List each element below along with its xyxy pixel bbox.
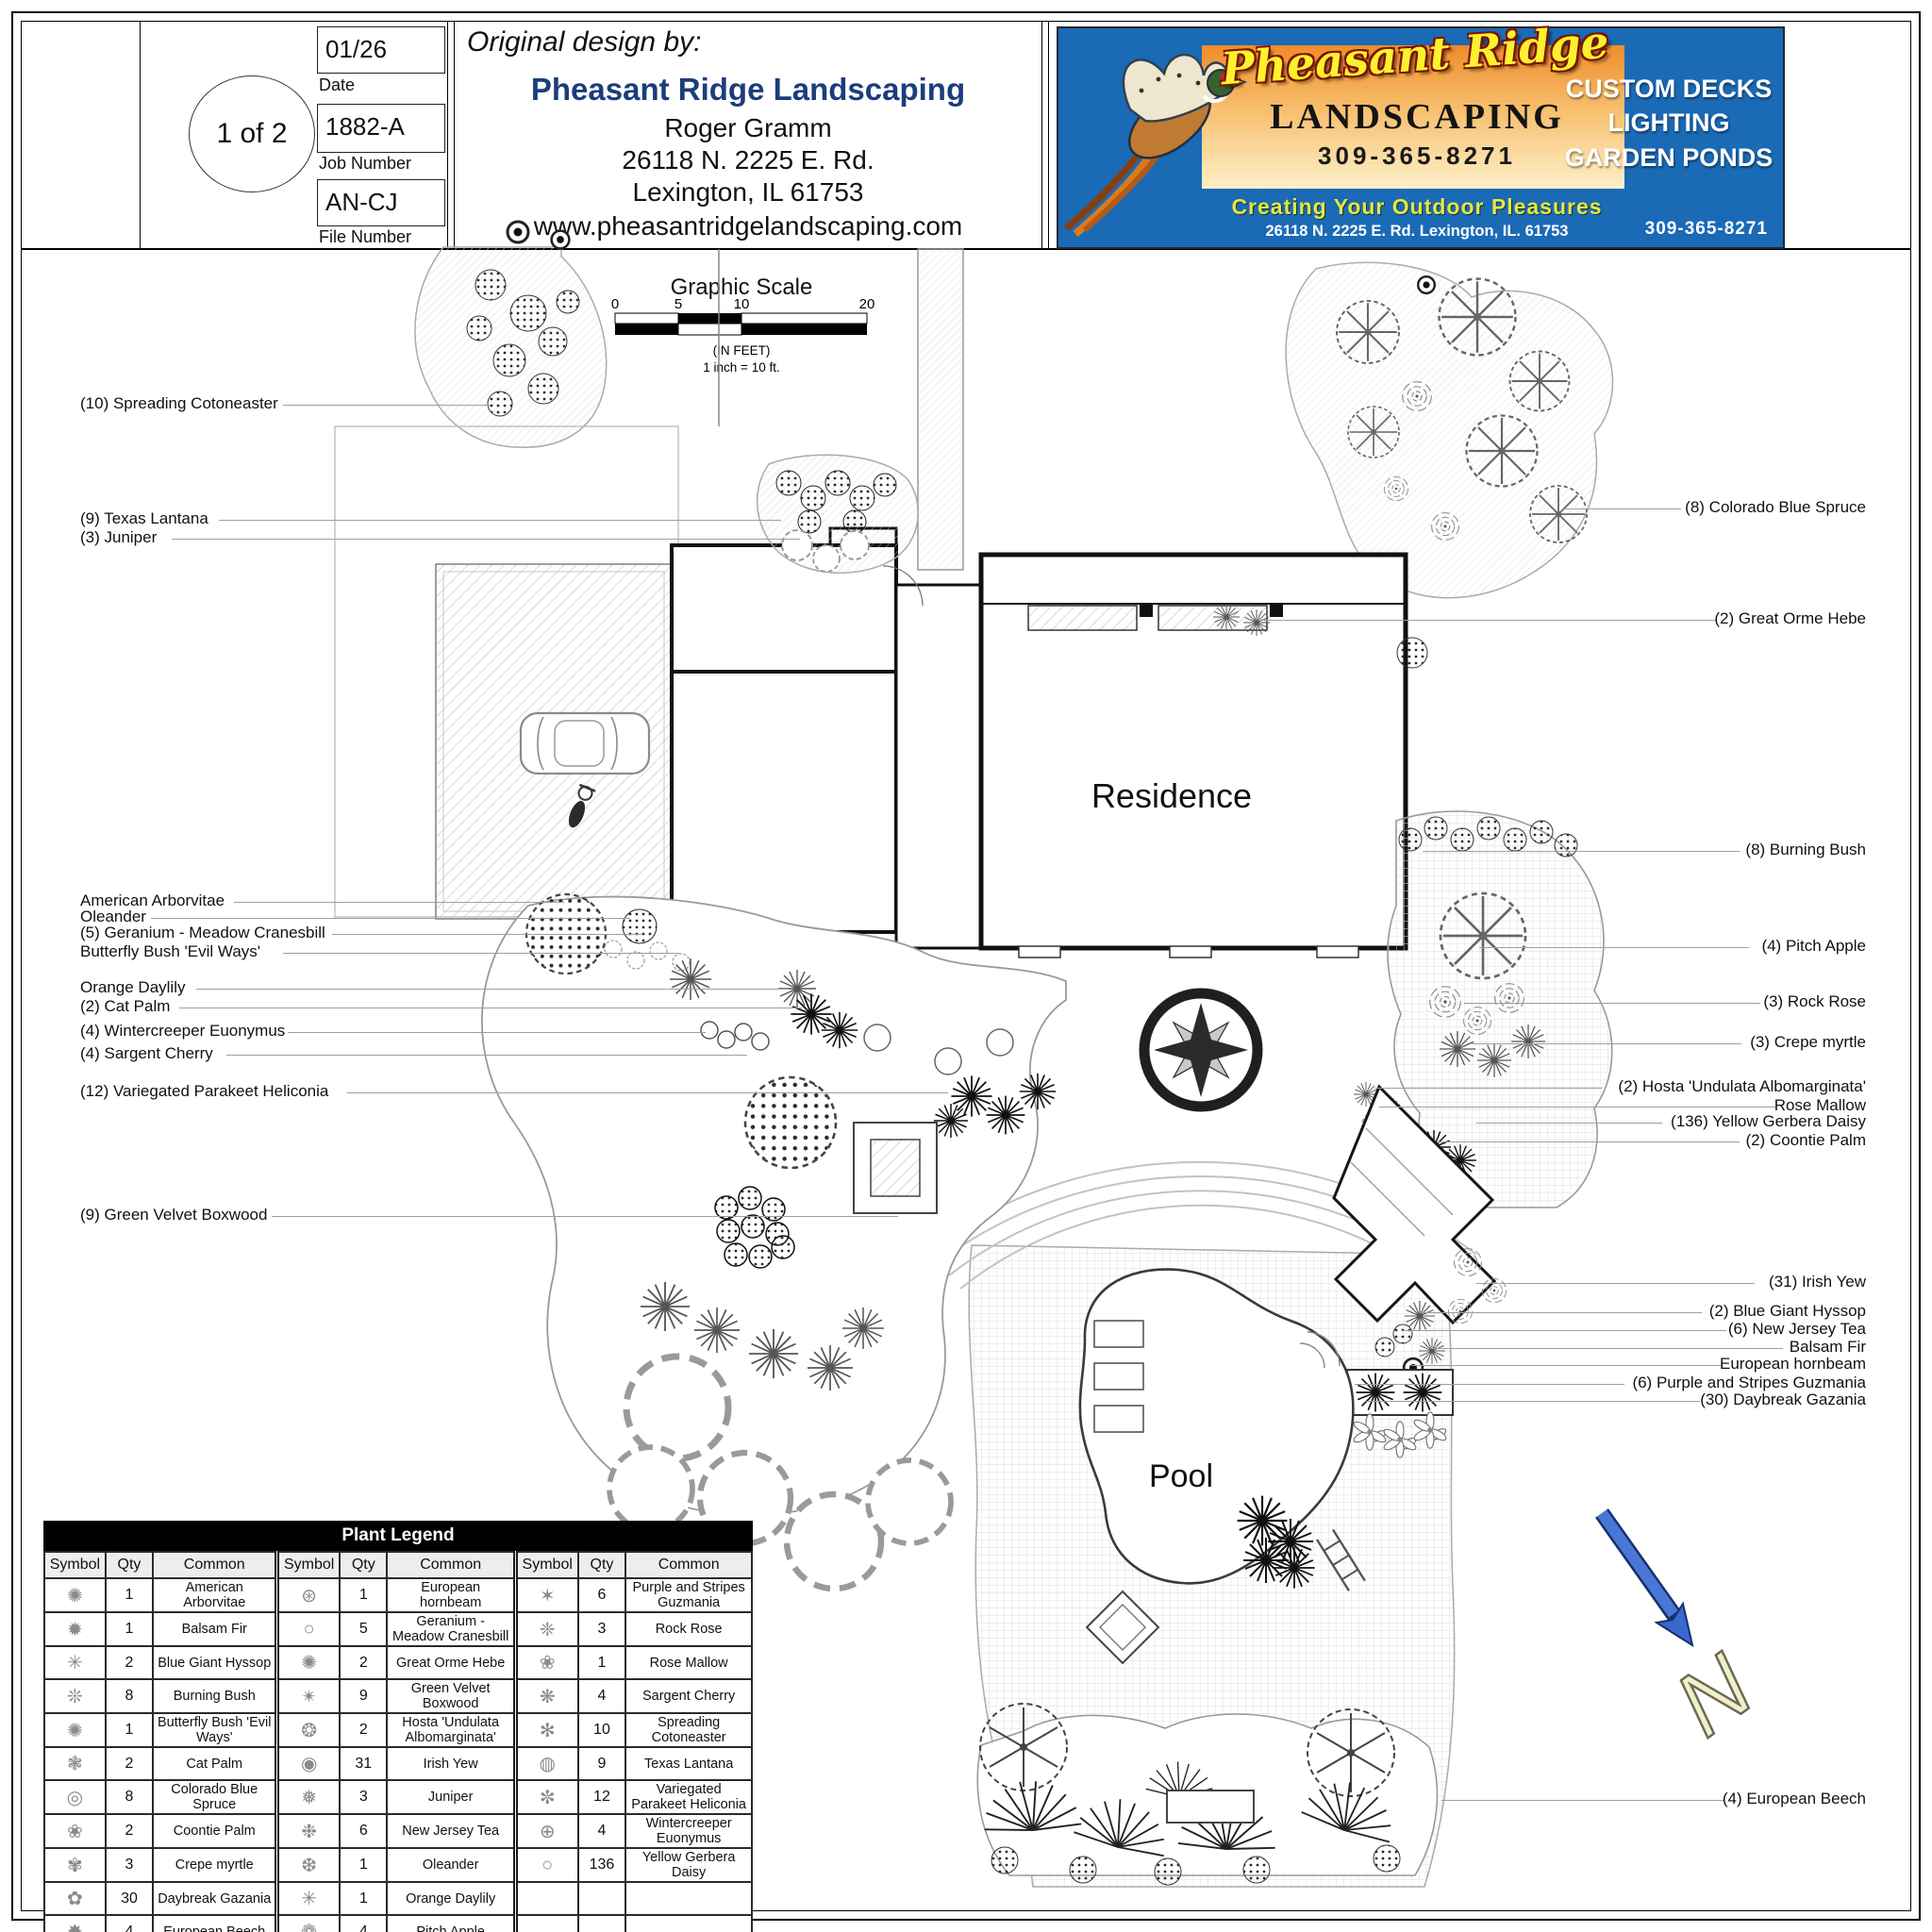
plant-qty: 1 xyxy=(106,1578,153,1612)
residence: Residence xyxy=(672,528,1406,958)
plant-symbol: ❂ xyxy=(277,1713,340,1747)
service-item: CUSTOM DECKS xyxy=(1560,72,1777,106)
legend-row: ✹1Balsam Fir○5Geranium - Meadow Cranesbi… xyxy=(44,1612,752,1646)
plant-name: Wintercreeper Euonymus xyxy=(625,1814,752,1848)
plant-name: Colorado Blue Spruce xyxy=(153,1780,277,1814)
callout-label: (3) Crepe myrtle xyxy=(1750,1033,1866,1052)
svg-text:5: 5 xyxy=(675,296,682,312)
callout-label: (4) Pitch Apple xyxy=(1761,937,1866,956)
callout-leader-line xyxy=(1479,947,1749,948)
callout-leader-line xyxy=(1379,1107,1775,1108)
callout-leader-line xyxy=(1438,1141,1740,1142)
front-walkway xyxy=(918,249,963,570)
legend-row: ❃2Cat Palm◉31Irish Yew◍9Texas Lantana xyxy=(44,1747,752,1780)
callout-leader-line xyxy=(1423,851,1740,852)
legend-row: ✺1Butterfly Bush 'Evil Ways'❂2Hosta 'Und… xyxy=(44,1713,752,1747)
plant-symbol: ❀ xyxy=(44,1814,106,1848)
callout-label: (9) Texas Lantana xyxy=(80,509,208,528)
legend-row: ✺1American Arborvitae⊛1European hornbeam… xyxy=(44,1578,752,1612)
plant-symbol: ○ xyxy=(277,1612,340,1646)
callout-label: European hornbeam xyxy=(1720,1355,1866,1374)
plant-qty: 9 xyxy=(578,1747,626,1780)
callout-leader-line xyxy=(1464,1003,1760,1004)
plant-qty: 3 xyxy=(340,1780,387,1814)
bed-top-left xyxy=(415,222,607,447)
plant-symbol xyxy=(515,1882,577,1915)
plant-name: Pitch Apple xyxy=(387,1915,515,1932)
plant-name: Juniper xyxy=(387,1780,515,1814)
callout-label: (4) Sargent Cherry xyxy=(80,1044,213,1063)
callout-leader-line xyxy=(1476,1123,1662,1124)
callout-leader-line xyxy=(1441,1800,1724,1801)
plant-qty xyxy=(578,1882,626,1915)
service-item: LIGHTING xyxy=(1560,106,1777,140)
plant-name xyxy=(625,1915,752,1932)
plant-name: Texas Lantana xyxy=(625,1747,752,1780)
plant-qty: 1 xyxy=(106,1612,153,1646)
callout-label: (30) Daybreak Gazania xyxy=(1700,1391,1866,1409)
callout-label: (12) Variegated Parakeet Heliconia xyxy=(80,1082,328,1101)
callout-leader-line xyxy=(151,918,630,919)
residence-label: Residence xyxy=(1091,776,1252,815)
plant-qty: 30 xyxy=(106,1882,153,1915)
callout-label: (3) Rock Rose xyxy=(1763,992,1866,1011)
north-arrow: N xyxy=(1585,1502,1887,1813)
callout-label: (2) Great Orme Hebe xyxy=(1714,609,1866,628)
plant-qty: 2 xyxy=(340,1713,387,1747)
plant-name: New Jersey Tea xyxy=(387,1814,515,1848)
plant-qty: 1 xyxy=(340,1848,387,1882)
north-letter: N xyxy=(1657,1635,1771,1756)
callout-label: Butterfly Bush 'Evil Ways' xyxy=(80,942,260,961)
plant-symbol: ✺ xyxy=(277,1646,340,1679)
plant-name: Butterfly Bush 'Evil Ways' xyxy=(153,1713,277,1747)
legend-col-header: Qty xyxy=(578,1552,626,1578)
legend-col-header: Common xyxy=(625,1552,752,1578)
callout-label: (6) Purple and Stripes Guzmania xyxy=(1632,1374,1866,1392)
plant-symbol: ✹ xyxy=(44,1612,106,1646)
plant-name: Daybreak Gazania xyxy=(153,1882,277,1915)
company-logo-banner: Pheasant Ridge LANDSCAPING 309-365-8271 … xyxy=(1057,26,1785,249)
svg-text:(IN FEET): (IN FEET) xyxy=(713,343,771,358)
callout-leader-line xyxy=(1264,620,1717,621)
plant-name: Variegated Parakeet Heliconia xyxy=(625,1780,752,1814)
legend-col-header: Common xyxy=(387,1552,515,1578)
plant-name: Rock Rose xyxy=(625,1612,752,1646)
plant-qty: 12 xyxy=(578,1780,626,1814)
plant-symbol: ✻ xyxy=(515,1713,577,1747)
plant-qty: 10 xyxy=(578,1713,626,1747)
callout-label: (31) Irish Yew xyxy=(1769,1273,1866,1291)
plant-qty: 6 xyxy=(340,1814,387,1848)
plant-symbol: ❁ xyxy=(277,1915,340,1932)
plant-qty: 4 xyxy=(578,1679,626,1713)
plant-symbol: ◉ xyxy=(277,1747,340,1780)
plant-symbol: ✶ xyxy=(515,1578,577,1612)
plant-name: Green Velvet Boxwood xyxy=(387,1679,515,1713)
callout-label: Orange Daylily xyxy=(80,978,186,997)
callout-label: (2) Hosta 'Undulata Albomarginata' xyxy=(1618,1077,1866,1096)
callout-leader-line xyxy=(1564,508,1681,509)
plant-symbol: ❈ xyxy=(515,1612,577,1646)
pool-label: Pool xyxy=(1149,1458,1213,1494)
plant-symbol: ○ xyxy=(515,1848,577,1882)
plant-symbol: ❋ xyxy=(515,1679,577,1713)
plant-name: Crepe myrtle xyxy=(153,1848,277,1882)
callout-label: (3) Juniper xyxy=(80,528,157,547)
plant-qty: 31 xyxy=(340,1747,387,1780)
plant-qty: 4 xyxy=(340,1915,387,1932)
svg-text:10: 10 xyxy=(734,296,750,312)
legend-col-header: Qty xyxy=(340,1552,387,1578)
callout-label: (9) Green Velvet Boxwood xyxy=(80,1206,267,1224)
legend-col-header: Symbol xyxy=(277,1552,340,1578)
callout-leader-line xyxy=(196,989,789,990)
callout-leader-line xyxy=(272,1216,898,1217)
banner-phone-2: 309-365-8271 xyxy=(1645,219,1768,240)
legend-col-header: Common xyxy=(153,1552,277,1578)
callout-leader-line xyxy=(1355,1384,1624,1385)
callout-leader-line xyxy=(226,1055,747,1056)
plant-qty: 8 xyxy=(106,1679,153,1713)
legend-row: ❊8Burning Bush✴9Green Velvet Boxwood❋4Sa… xyxy=(44,1679,752,1713)
plant-symbol: ❀ xyxy=(515,1646,577,1679)
svg-text:20: 20 xyxy=(859,296,875,312)
compass-rose xyxy=(1144,993,1257,1107)
legend-row: ✳2Blue Giant Hyssop✺2Great Orme Hebe❀1Ro… xyxy=(44,1646,752,1679)
plant-qty: 3 xyxy=(578,1612,626,1646)
plant-qty: 2 xyxy=(106,1747,153,1780)
bed-lantana xyxy=(758,455,919,573)
callout-leader-line xyxy=(1476,1283,1755,1284)
plant-symbol: ✾ xyxy=(44,1848,106,1882)
brand-block: LANDSCAPING xyxy=(1219,96,1615,138)
callout-leader-line xyxy=(1420,1312,1702,1313)
legend-col-header: Qty xyxy=(106,1552,153,1578)
plant-name: Hosta 'Undulata Albomarginata' xyxy=(387,1713,515,1747)
services-list: CUSTOM DECKS LIGHTING GARDEN PONDS xyxy=(1560,72,1777,175)
callout-leader-line xyxy=(288,1032,706,1033)
callout-label: (4) European Beech xyxy=(1723,1790,1866,1808)
callout-leader-line xyxy=(332,934,641,935)
plant-name: Coontie Palm xyxy=(153,1814,277,1848)
plant-symbol: ✺ xyxy=(44,1713,106,1747)
plant-symbol: ◍ xyxy=(515,1747,577,1780)
plant-legend: Plant LegendSymbolQtyCommonSymbolQtyComm… xyxy=(43,1521,753,1932)
callout-label: (10) Spreading Cotoneaster xyxy=(80,394,278,413)
plant-symbol: ✿ xyxy=(44,1882,106,1915)
legend-col-header: Symbol xyxy=(44,1552,106,1578)
plant-symbol: ✳ xyxy=(277,1882,340,1915)
callout-label: (8) Burning Bush xyxy=(1745,841,1866,859)
legend-row: ◎8Colorado Blue Spruce❅3Juniper✼12Varieg… xyxy=(44,1780,752,1814)
legend-row: ✸4European Beech❁4Pitch Apple xyxy=(44,1915,752,1932)
callout-label: (2) Cat Palm xyxy=(80,997,170,1016)
legend-row: ✿30Daybreak Gazania✳1Orange Daylily xyxy=(44,1882,752,1915)
callout-leader-line xyxy=(1472,1043,1741,1044)
plant-symbol xyxy=(515,1915,577,1932)
plant-qty: 3 xyxy=(106,1848,153,1882)
legend-row: ❀2Coontie Palm❉6New Jersey Tea⊕4Wintercr… xyxy=(44,1814,752,1848)
service-item: GARDEN PONDS xyxy=(1560,141,1777,175)
svg-text:0: 0 xyxy=(611,296,619,312)
callout-leader-line xyxy=(1411,1365,1721,1366)
svg-text:1 inch = 10 ft.: 1 inch = 10 ft. xyxy=(703,360,779,375)
legend-title: Plant Legend xyxy=(43,1521,753,1551)
plant-name: Yellow Gerbera Daisy xyxy=(625,1848,752,1882)
plant-qty: 4 xyxy=(578,1814,626,1848)
plant-name: Oleander xyxy=(387,1848,515,1882)
plant-symbol: ❉ xyxy=(277,1814,340,1848)
callout-label: (5) Geranium - Meadow Cranesbill xyxy=(80,924,325,942)
plant-qty: 2 xyxy=(106,1814,153,1848)
legend-row: ✾3Crepe myrtle❆1Oleander○136Yellow Gerbe… xyxy=(44,1848,752,1882)
callout-label: (2) Blue Giant Hyssop xyxy=(1709,1302,1866,1321)
plant-name xyxy=(625,1882,752,1915)
bed-bottom xyxy=(977,1704,1437,1885)
plant-symbol: ◎ xyxy=(44,1780,106,1814)
plant-name: American Arborvitae xyxy=(153,1578,277,1612)
plant-symbol: ❆ xyxy=(277,1848,340,1882)
legend-table: SymbolQtyCommonSymbolQtyCommonSymbolQtyC… xyxy=(43,1551,753,1932)
plant-symbol: ⊛ xyxy=(277,1578,340,1612)
callout-label: Balsam Fir xyxy=(1790,1338,1866,1357)
plant-qty: 8 xyxy=(106,1780,153,1814)
callout-leader-line xyxy=(1375,1088,1602,1089)
banner-phone: 309-365-8271 xyxy=(1219,142,1615,171)
landscape-plan-sheet: 1 of 2 01/26 Date 1882-A Job Number AN-C… xyxy=(0,0,1932,1932)
plant-name: European hornbeam xyxy=(387,1578,515,1612)
callout-leader-line xyxy=(347,1092,948,1093)
banner-tagline: Creating Your Outdoor Pleasures xyxy=(1172,194,1662,220)
callout-leader-line xyxy=(219,520,781,521)
callout-label: (8) Colorado Blue Spruce xyxy=(1685,498,1866,517)
plant-symbol: ✸ xyxy=(44,1915,106,1932)
callout-leader-line xyxy=(234,902,564,903)
plant-qty: 2 xyxy=(106,1646,153,1679)
plant-name: Orange Daylily xyxy=(387,1882,515,1915)
plant-symbol: ❅ xyxy=(277,1780,340,1814)
plant-qty: 2 xyxy=(340,1646,387,1679)
callout-leader-line xyxy=(283,953,679,954)
legend-col-header: Symbol xyxy=(515,1552,577,1578)
car xyxy=(521,713,649,774)
plant-name: European Beech xyxy=(153,1915,277,1932)
plant-qty: 5 xyxy=(340,1612,387,1646)
plant-symbol: ⊕ xyxy=(515,1814,577,1848)
plant-name: Irish Yew xyxy=(387,1747,515,1780)
bed-top-right xyxy=(1286,262,1612,598)
plant-qty xyxy=(578,1915,626,1932)
plant-qty: 9 xyxy=(340,1679,387,1713)
callout-leader-line xyxy=(1430,1348,1783,1349)
plant-symbol: ✺ xyxy=(44,1578,106,1612)
plant-name: Sargent Cherry xyxy=(625,1679,752,1713)
plant-name: Blue Giant Hyssop xyxy=(153,1646,277,1679)
callout-label: (6) New Jersey Tea xyxy=(1728,1320,1866,1339)
plant-qty: 1 xyxy=(340,1578,387,1612)
plant-symbol: ❃ xyxy=(44,1747,106,1780)
plant-qty: 136 xyxy=(578,1848,626,1882)
plant-name: Spreading Cotoneaster xyxy=(625,1713,752,1747)
callout-leader-line xyxy=(1366,1401,1700,1402)
callout-leader-line xyxy=(283,405,491,406)
plant-symbol: ✴ xyxy=(277,1679,340,1713)
callout-leader-line xyxy=(179,1008,802,1008)
callout-leader-line xyxy=(1402,1330,1726,1331)
plant-name: Great Orme Hebe xyxy=(387,1646,515,1679)
callout-label: (4) Wintercreeper Euonymus xyxy=(80,1022,285,1041)
plant-qty: 1 xyxy=(106,1713,153,1747)
callout-label: (136) Yellow Gerbera Daisy xyxy=(1671,1112,1866,1131)
banner-address: 26118 N. 2225 E. Rd. Lexington, IL. 6175… xyxy=(1172,223,1662,241)
plant-qty: 4 xyxy=(106,1915,153,1932)
plant-qty: 1 xyxy=(340,1882,387,1915)
plant-name: Purple and Stripes Guzmania xyxy=(625,1578,752,1612)
callout-leader-line xyxy=(172,539,800,540)
plant-symbol: ✼ xyxy=(515,1780,577,1814)
plant-name: Geranium - Meadow Cranesbill xyxy=(387,1612,515,1646)
plant-qty: 1 xyxy=(578,1646,626,1679)
plant-name: Cat Palm xyxy=(153,1747,277,1780)
callout-label: (2) Coontie Palm xyxy=(1745,1131,1866,1150)
plant-name: Rose Mallow xyxy=(625,1646,752,1679)
plant-name: Balsam Fir xyxy=(153,1612,277,1646)
plant-symbol: ✳ xyxy=(44,1646,106,1679)
graphic-scale: Graphic Scale 0 5 10 20 (IN FEET) 1 inch… xyxy=(611,275,875,375)
plant-name: Burning Bush xyxy=(153,1679,277,1713)
plant-symbol: ❊ xyxy=(44,1679,106,1713)
plant-qty: 6 xyxy=(578,1578,626,1612)
